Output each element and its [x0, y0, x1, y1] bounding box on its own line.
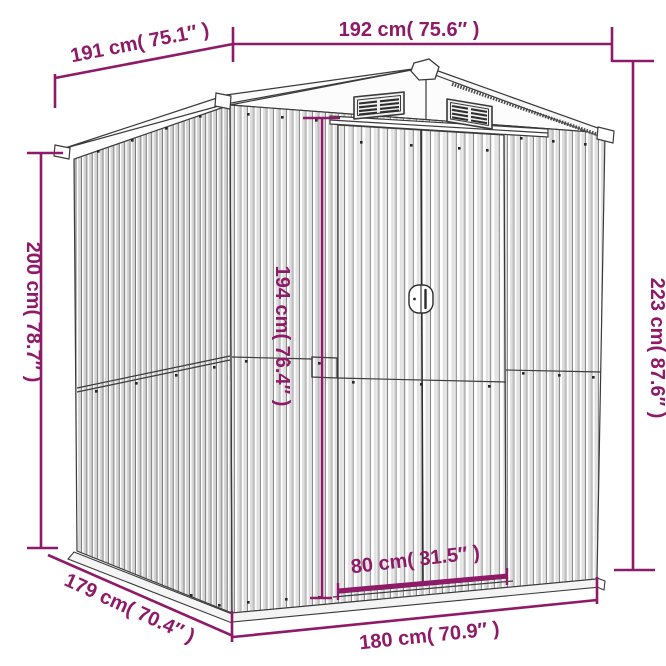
dim-wall-height-label: 200 cm( 78.7″ ) — [22, 242, 44, 383]
diagram-svg: 191 cm( 75.1″ ) 192 cm( 75.6″ ) 223 cm( … — [0, 0, 666, 666]
shed-dimension-diagram: 191 cm( 75.1″ ) 192 cm( 75.6″ ) 223 cm( … — [0, 0, 666, 666]
roof-corner-cap-front-left — [215, 93, 231, 109]
dim-width-top-label: 192 cm( 75.6″ ) — [339, 19, 480, 41]
dim-width-top: 192 cm( 75.6″ ) — [233, 19, 612, 62]
door-handle — [409, 285, 433, 313]
dim-total-height: 223 cm( 87.6″ ) — [612, 61, 666, 570]
dim-wall-height: 200 cm( 78.7″ ) — [22, 153, 63, 548]
dim-depth-top-label: 191 cm( 75.1″ ) — [69, 19, 211, 67]
dim-door-height-label: 194 cm( 76.4″ ) — [271, 266, 293, 407]
dim-total-height-label: 223 cm( 87.6″ ) — [646, 278, 666, 419]
side-wall — [74, 105, 232, 613]
dim-depth-top: 191 cm( 75.1″ ) — [55, 19, 233, 108]
shed-illustration — [54, 59, 614, 623]
left-vent — [354, 92, 404, 119]
